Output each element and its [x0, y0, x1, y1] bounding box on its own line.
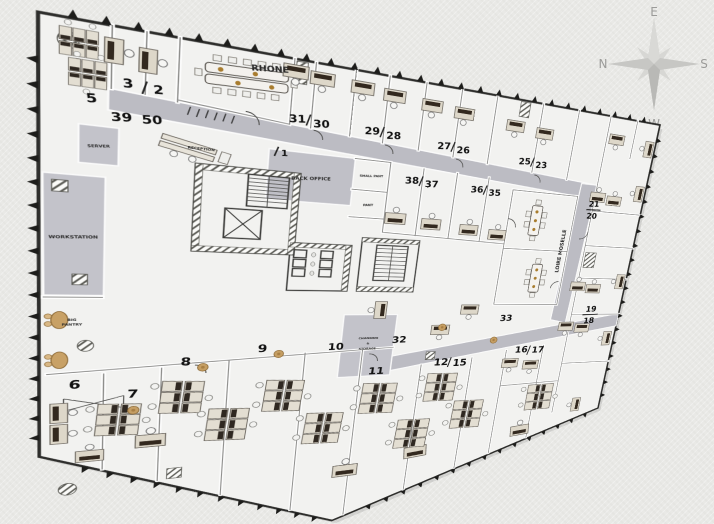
floorplan-drawing: 3 2 5 39 50 1 31 30 29 28 27 26 25 23 38… [38, 12, 672, 524]
corridor-number-1: 1 [281, 149, 288, 159]
room-number-9: 9 [257, 342, 268, 355]
room-number-38: 38 [405, 175, 420, 186]
room-number-33: 33 [499, 314, 513, 324]
room-number-30: 30 [313, 117, 330, 130]
room-number-35: 35 [488, 188, 501, 198]
label-workstation: WORKSTATION [48, 235, 98, 240]
room-number-3: 3 [122, 76, 134, 91]
room-number-27: 27 [437, 140, 451, 151]
floorplan-page: E S W N [0, 0, 714, 524]
zone-changing-storage [337, 315, 397, 378]
room-number-32: 32 [391, 335, 407, 346]
label-server: SERVER [87, 144, 110, 149]
room-number-2: 2 [153, 83, 165, 98]
label-back-office: BACK OFFICE [291, 175, 331, 181]
room-number-37: 37 [425, 179, 439, 190]
room-number-16: 16 [514, 344, 528, 355]
room-number-12: 12 [433, 356, 449, 368]
svg-text:PANTRY: PANTRY [62, 323, 83, 327]
svg-text:CHANGING: CHANGING [358, 337, 378, 341]
room-number-26: 26 [456, 145, 470, 156]
compass-south-label: S [700, 57, 708, 71]
compass-star-icon [608, 18, 700, 110]
room-number-6: 6 [68, 378, 81, 392]
compass-rose: E S W N [592, 2, 714, 134]
room-number-31: 31 [289, 112, 307, 125]
room-number-7: 7 [127, 387, 139, 401]
room-number-5: 5 [85, 91, 98, 106]
room-number-21: 21 [588, 199, 600, 208]
room-number-25: 25 [518, 156, 531, 166]
svg-text:STORAGE: STORAGE [358, 347, 376, 351]
room-number-28: 28 [386, 130, 401, 142]
compass-north-label: N [599, 57, 608, 71]
room-number-23: 23 [535, 160, 547, 170]
room-number-18: 18 [583, 316, 595, 325]
room-number-19: 19 [585, 305, 597, 314]
room-number-17: 17 [531, 344, 545, 355]
label-small-pantry: SMALL PANT [360, 174, 384, 178]
room-number-36: 36 [470, 184, 483, 194]
room-number-50: 50 [141, 113, 163, 128]
room-number-10: 10 [327, 342, 344, 353]
room-number-29: 29 [365, 125, 380, 137]
svg-text:BIG: BIG [67, 318, 76, 322]
room-number-15: 15 [452, 357, 468, 368]
room-number-11: 11 [367, 365, 385, 377]
label-pantry: PANT [363, 204, 374, 207]
room-number-20: 20 [586, 211, 598, 220]
room-number-8: 8 [180, 355, 192, 368]
compass-east-label: E [650, 5, 658, 19]
room-number-39: 39 [110, 110, 133, 125]
